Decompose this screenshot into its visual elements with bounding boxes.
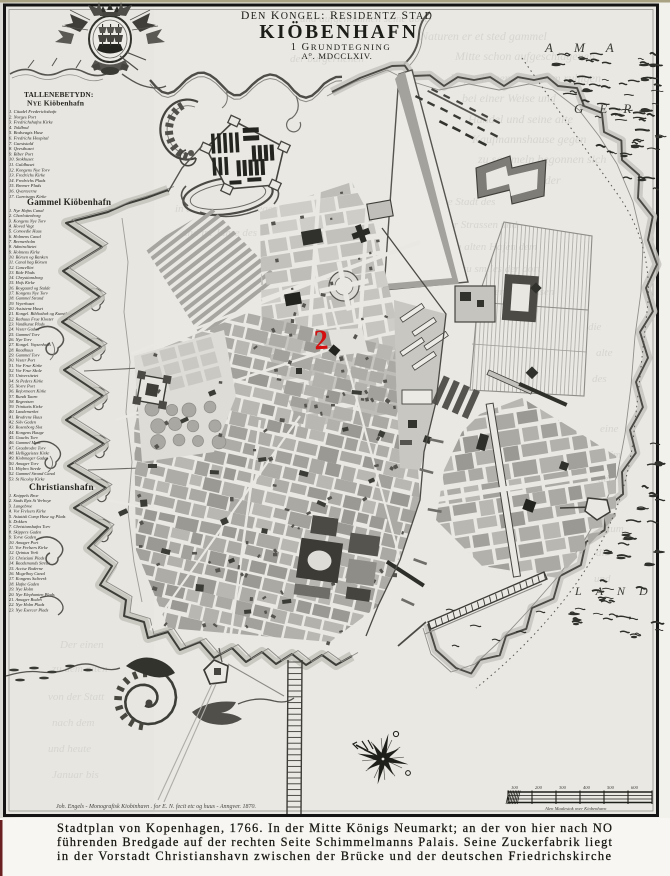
svg-text:LAND: LAND: [574, 584, 662, 598]
svg-text:am alten Hafen dem: am alten Hafen dem: [448, 241, 537, 253]
svg-text:600: 600: [631, 785, 639, 790]
svg-text:400: 400: [583, 785, 591, 790]
svg-text:1. Citadel Frederichshafn: 1. Citadel Frederichshafn: [9, 109, 57, 114]
svg-text:4. Toldbod: 4. Toldbod: [9, 125, 29, 130]
svg-text:500: 500: [607, 785, 615, 790]
svg-text:alte: alte: [596, 347, 613, 359]
svg-text:11. Guldhuset: 11. Guldhuset: [9, 162, 35, 167]
svg-text:12. Kongens Nye Torv: 12. Kongens Nye Torv: [9, 167, 51, 172]
svg-text:bei einer Weise und: bei einer Weise und: [462, 91, 557, 105]
svg-text:Kaufmannshause gegen: Kaufmannshause gegen: [471, 132, 586, 146]
svg-text:2. Norges Port: 2. Norges Port: [9, 114, 37, 119]
svg-text:2: 2: [313, 325, 329, 357]
svg-text:Joh. Engels - Monografisk Kiob: Joh. Engels - Monografisk Kiobinhavn . f…: [56, 803, 256, 810]
svg-text:Naturen er et sted gammel: Naturen er et sted gammel: [419, 29, 548, 43]
svg-text:6. Fredrichs Hospital: 6. Fredrichs Hospital: [9, 136, 49, 141]
svg-text:8. Qvesthuset: 8. Qvesthuset: [9, 146, 34, 151]
svg-text:eine: eine: [600, 423, 618, 435]
svg-text:9. Biber Port: 9. Biber Port: [9, 151, 34, 156]
svg-text:100: 100: [511, 785, 519, 790]
svg-text:in der Vorstadt Christianshavn: in der Vorstadt Christianshavn zwischen …: [57, 849, 612, 863]
svg-text:200: 200: [535, 785, 543, 790]
svg-text:16. Qvarteerne: 16. Qvarteerne: [9, 189, 37, 194]
svg-text:5. Bodsvagts Huse: 5. Bodsvagts Huse: [9, 130, 43, 135]
svg-text:zu smiles der dort: zu smiles der dort: [461, 263, 541, 275]
svg-text:300: 300: [559, 785, 567, 790]
svg-text:Christianshafn: Christianshafn: [29, 483, 94, 493]
svg-text:und heute: und heute: [48, 743, 91, 755]
svg-text:53. St Nicolay Kirke: 53. St Nicolay Kirke: [9, 476, 45, 481]
svg-text:NYE Kiöbenhafn: NYE Kiöbenhafn: [27, 99, 85, 108]
svg-text:GER: GER: [574, 101, 647, 116]
svg-text:die: die: [588, 321, 602, 333]
svg-text:Alen Maalestok over Kiobenhavn: Alen Maalestok over Kiobenhavn: [544, 806, 607, 811]
svg-text:AMA: AMA: [544, 40, 635, 55]
svg-text:23. Nye Exercer Plads: 23. Nye Exercer Plads: [9, 607, 49, 612]
svg-text:3. Fredrichshafns Kirke: 3. Fredrichshafns Kirke: [9, 120, 53, 125]
svg-text:DEN KONGEL: RESIDENTZ STAD: DEN KONGEL: RESIDENTZ STAD: [241, 8, 433, 22]
svg-text:13. Fredrichs Kirke: 13. Fredrichs Kirke: [9, 173, 45, 178]
svg-text:7. Gueststald: 7. Gueststald: [9, 141, 34, 146]
svg-text:Stadtplan von Kopenhagen, 1766: Stadtplan von Kopenhagen, 1766. In der M…: [57, 821, 612, 835]
svg-text:15. Bremer Plads: 15. Bremer Plads: [9, 183, 41, 188]
svg-text:Gammel Kiöbenhafn: Gammel Kiöbenhafn: [27, 197, 111, 207]
svg-text:KIÖBENHAFN: KIÖBENHAFN: [259, 22, 418, 43]
svg-text:Januar bis: Januar bis: [52, 769, 99, 781]
svg-text:führenden Bredgade auf der rec: führenden Bredgade auf der rechten Seite…: [57, 835, 613, 849]
svg-text:Der einen: Der einen: [59, 639, 104, 651]
svg-text:nach dem: nach dem: [52, 717, 95, 729]
svg-text:14. Fredrichs Plads: 14. Fredrichs Plads: [9, 178, 46, 183]
svg-text:Ao. MDCCLXIV.: Ao. MDCCLXIV.: [301, 51, 372, 61]
svg-text:des: des: [592, 373, 607, 385]
svg-text:10. Stokhuset: 10. Stokhuset: [9, 157, 34, 162]
svg-text:von der Statt: von der Statt: [48, 691, 105, 703]
